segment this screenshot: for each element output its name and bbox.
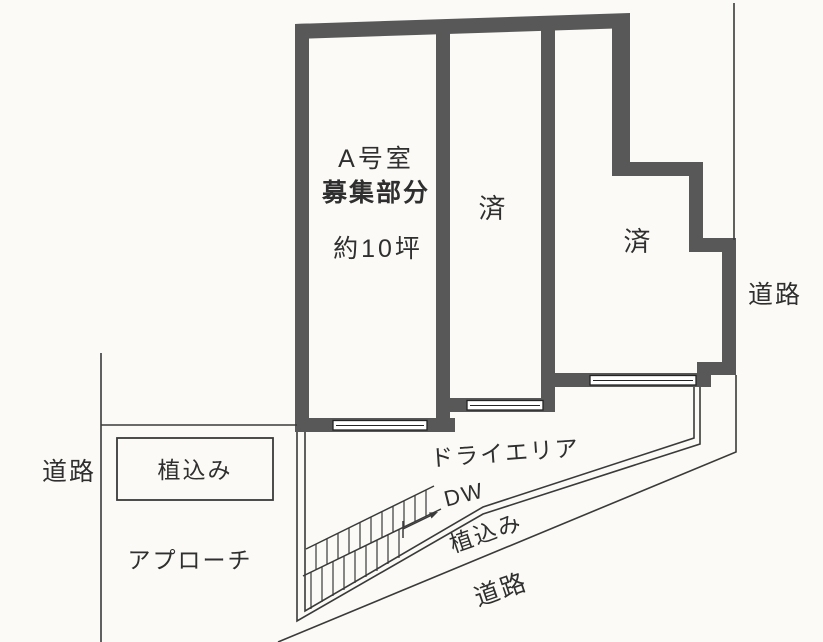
window-room-b [467,401,543,411]
room-a-name: A号室 [338,145,414,173]
floorplan-scan: A号室 募集部分 約10坪 済 済 道路 道路 道路 ドライエリア DW 植込み… [0,0,823,642]
dw-label: DW [441,477,486,511]
road-label-right: 道路 [748,281,802,309]
stairs [303,486,441,609]
floorplan-drawing: A号室 募集部分 約10坪 済 済 道路 道路 道路 ドライエリア DW 植込み… [0,0,823,642]
road-label-bottom: 道路 [471,568,531,612]
room-c-status: 済 [624,227,651,257]
room-b-status: 済 [479,194,506,224]
planting-box-label: 植込み [158,457,233,483]
wall-right-upper [612,24,630,176]
room-a-size: 約10坪 [333,235,423,263]
window-room-a [333,421,427,431]
wall-left [295,24,309,433]
dry-area-label: ドライエリア [429,435,580,471]
wall-right-lower [722,238,736,375]
stair-edge-middle [303,509,441,576]
road-label-left: 道路 [42,458,96,486]
building-walls [295,13,736,432]
window-symbols [333,376,696,431]
wall-divider-1 [436,33,450,432]
wall-divider-2 [541,29,555,412]
window-room-c [590,376,696,386]
planting-strip-label: 植込み [446,508,525,557]
approach-label: アプローチ [128,547,253,573]
wall-top [295,13,630,39]
room-a-recruit: 募集部分 [321,178,430,207]
